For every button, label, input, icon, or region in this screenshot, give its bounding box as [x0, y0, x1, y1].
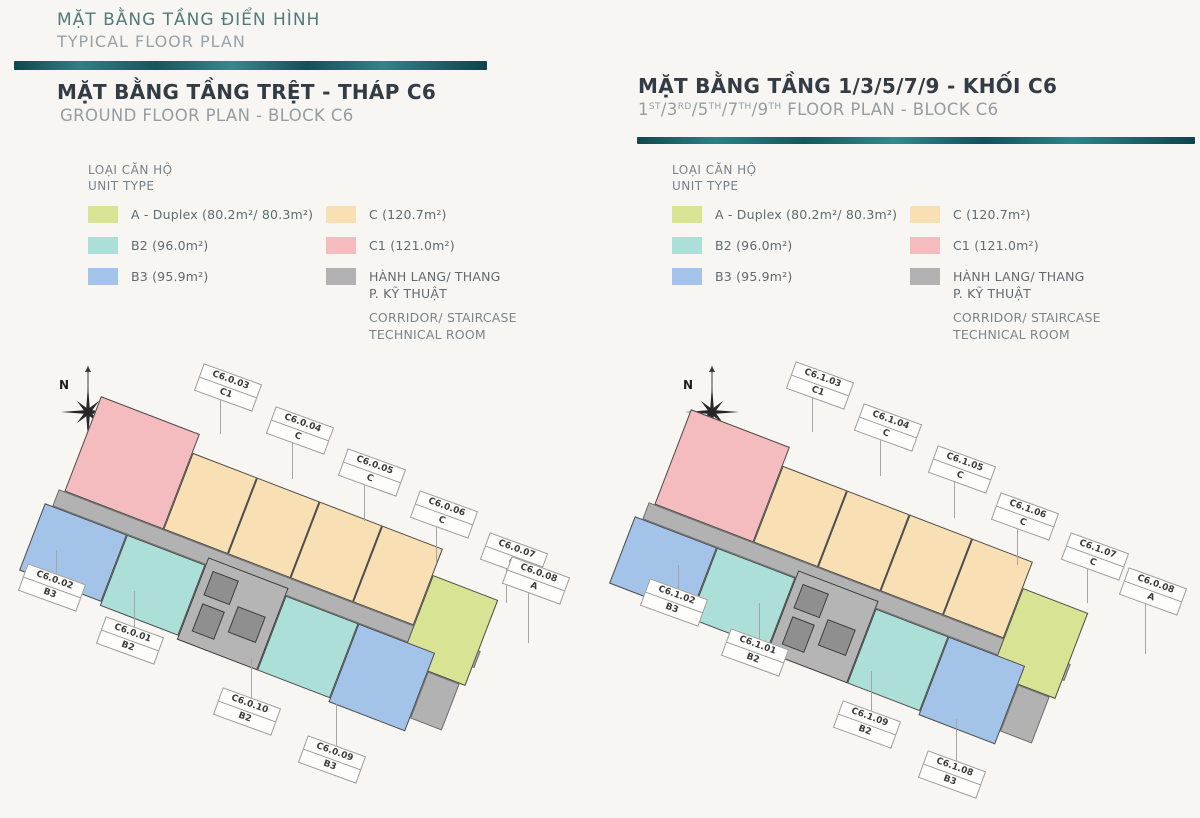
plan-title-en: GROUND FLOOR PLAN - BLOCK C6: [60, 106, 354, 125]
unit-label-leader: [871, 671, 872, 713]
legend-item-label: B2 (96.0m²): [715, 237, 792, 254]
legend-column: A - Duplex (80.2m²/ 80.3m²)B2 (96.0m²)B3…: [88, 206, 323, 299]
unit-label-leader: [759, 603, 760, 641]
legend-swatch: [910, 237, 940, 254]
unit-divider: [880, 515, 910, 590]
unit-label-leader: [292, 443, 293, 479]
compass-n-label: N: [59, 378, 69, 392]
legend-swatch: [88, 206, 118, 223]
unit-label-leader: [528, 593, 529, 643]
technical-room: [782, 616, 815, 653]
legend-item: A - Duplex (80.2m²/ 80.3m²): [672, 206, 907, 223]
unit-label-leader: [1087, 569, 1088, 603]
legend-title-en: UNIT TYPE: [88, 178, 648, 194]
legend-item-label: C1 (121.0m²): [369, 237, 455, 254]
unit-label-leader: [56, 550, 57, 576]
unit-label-leader: [364, 485, 365, 521]
legend-item: B3 (95.9m²): [672, 268, 907, 285]
unit-divider: [290, 502, 320, 577]
unit-label-leader: [134, 591, 135, 629]
legend-swatch: [672, 237, 702, 254]
legend-item-label: C1 (121.0m²): [953, 237, 1039, 254]
unit-label-leader: [678, 565, 679, 591]
unit-label-leader: [954, 482, 955, 518]
legend-item-label: B3 (95.9m²): [715, 268, 792, 285]
legend-swatch: [910, 206, 940, 223]
legend-item: C (120.7m²): [326, 206, 586, 223]
legend-item-label: C (120.7m²): [953, 206, 1031, 223]
unit-label-leader: [1017, 529, 1018, 565]
legend-item-label: C (120.7m²): [369, 206, 447, 223]
legend-swatch: [88, 237, 118, 254]
legend-item: C (120.7m²): [910, 206, 1170, 223]
legend-swatch: [672, 206, 702, 223]
accent-bar: [637, 137, 1195, 144]
legend-swatch: [326, 237, 356, 254]
legend-item: C1 (121.0m²): [326, 237, 586, 254]
plan-title-vi: MẶT BẰNG TẦNG TRỆT - THÁP C6: [57, 80, 436, 104]
technical-room: [192, 603, 225, 640]
legend-item: B2 (96.0m²): [88, 237, 323, 254]
legend-item: B3 (95.9m²): [88, 268, 323, 285]
legend-swatch: [326, 268, 356, 285]
unit-label-leader: [336, 704, 337, 748]
legend-title-en: UNIT TYPE: [672, 178, 1200, 194]
technical-room: [793, 584, 828, 618]
legend-swatch: [910, 268, 940, 285]
document-title-en: TYPICAL FLOOR PLAN: [57, 32, 246, 51]
technical-room: [203, 571, 238, 605]
unit-divider: [227, 478, 257, 553]
legend-item: B2 (96.0m²): [672, 237, 907, 254]
legend-swatch: [672, 268, 702, 285]
unit-divider: [817, 491, 847, 566]
legend-item-label: B2 (96.0m²): [131, 237, 208, 254]
unit-label-leader: [251, 658, 252, 700]
unit-label-leader: [880, 440, 881, 476]
legend-swatch: [326, 206, 356, 223]
unit-divider: [352, 526, 382, 601]
plan-title-en: 1ST/3RD/5TH/7TH/9TH FLOOR PLAN - BLOCK C…: [638, 100, 999, 119]
technical-room: [228, 606, 266, 643]
building-outline: [33, 402, 512, 737]
unit-label-leader: [436, 527, 437, 563]
unit-label-leader: [956, 719, 957, 763]
legend-item-label: B3 (95.9m²): [131, 268, 208, 285]
unit-label-leader: [220, 400, 221, 434]
accent-bar: [14, 61, 487, 70]
legend-swatch: [88, 268, 118, 285]
legend-item: A - Duplex (80.2m²/ 80.3m²): [88, 206, 323, 223]
legend-title-vi: LOẠI CĂN HỘ: [672, 162, 1200, 178]
unit-label-leader: [1145, 604, 1146, 654]
document-title-vi: MẶT BẰNG TẦNG ĐIỂN HÌNH: [57, 10, 320, 30]
plan-title-vi: MẶT BẰNG TẦNG 1/3/5/7/9 - KHỐI C6: [638, 74, 1057, 98]
legend-item-label: A - Duplex (80.2m²/ 80.3m²): [715, 206, 897, 223]
compass-n-label: N: [683, 378, 693, 392]
legend-item-label: A - Duplex (80.2m²/ 80.3m²): [131, 206, 313, 223]
building-outline: [623, 415, 1102, 750]
technical-room: [818, 619, 856, 656]
legend-item: C1 (121.0m²): [910, 237, 1170, 254]
unit-label-leader: [812, 398, 813, 432]
legend-title-vi: LOẠI CĂN HỘ: [88, 162, 648, 178]
legend-column: A - Duplex (80.2m²/ 80.3m²)B2 (96.0m²)B3…: [672, 206, 907, 299]
unit-divider: [942, 539, 972, 614]
document-page: MẶT BẰNG TẦNG ĐIỂN HÌNH TYPICAL FLOOR PL…: [0, 0, 1200, 818]
